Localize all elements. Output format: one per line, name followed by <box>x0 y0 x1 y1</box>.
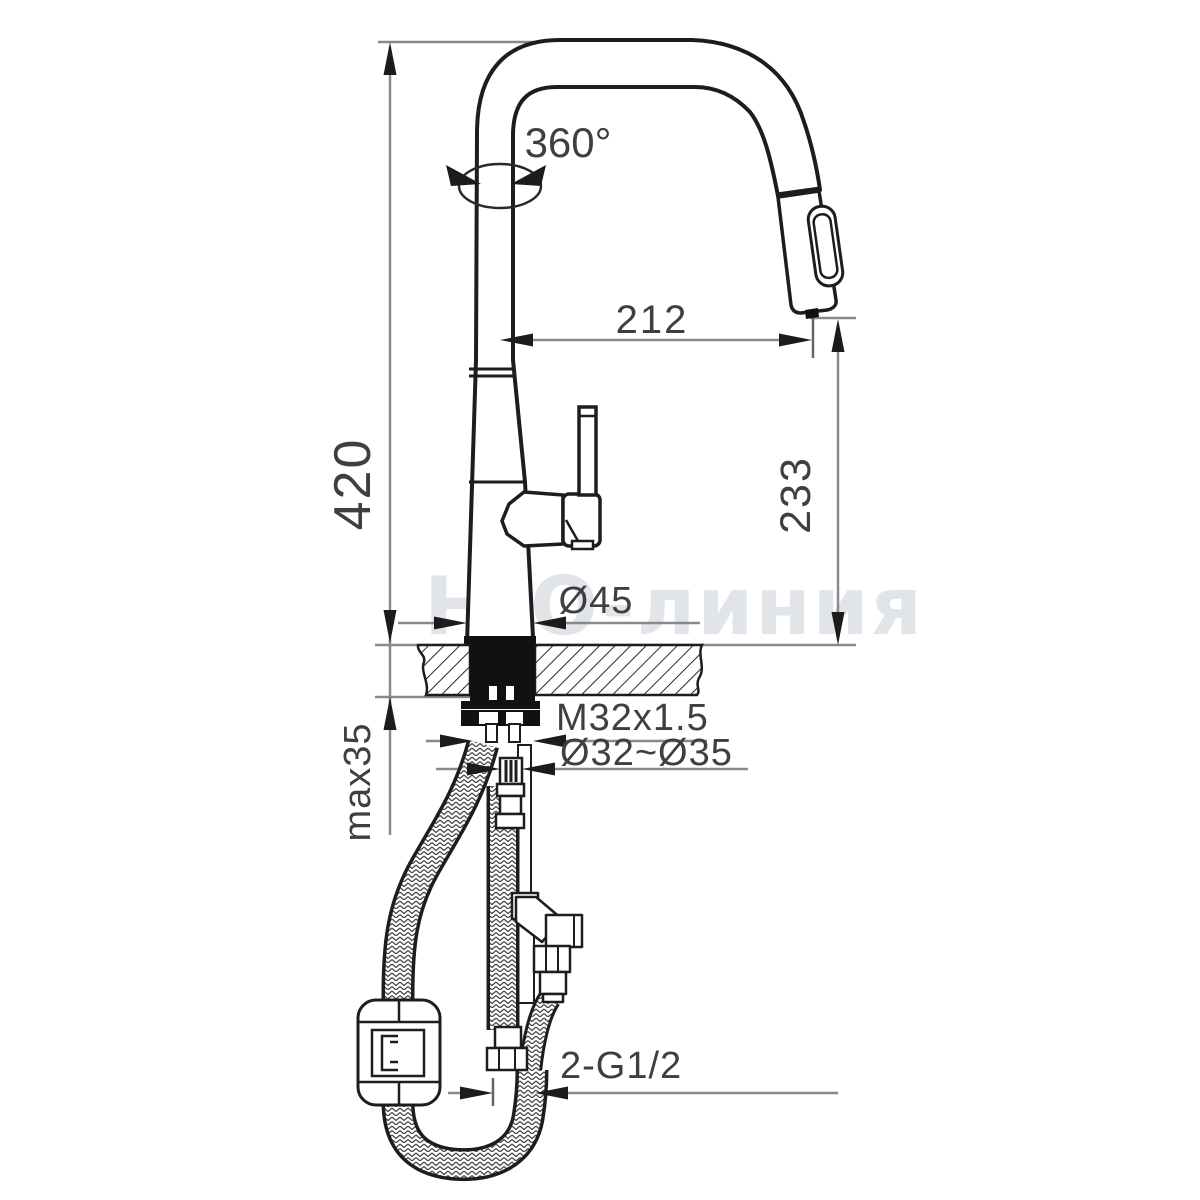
shank-slot-2 <box>506 686 514 700</box>
valve-cylinder <box>546 915 582 947</box>
hose-end-collar <box>495 1027 521 1048</box>
dim-mounting-hole-label: Ø32~Ø35 <box>560 732 733 774</box>
dim-base-diameter-label: Ø45 <box>559 580 634 622</box>
handle-base-tab <box>572 541 593 549</box>
valve-body <box>502 492 563 546</box>
fitting-ring-3 <box>496 814 524 828</box>
under-counter-assembly <box>358 724 582 1165</box>
fitting-ring-1 <box>497 784 524 796</box>
counter-left <box>418 645 470 695</box>
mounting-nut <box>461 710 540 726</box>
arrow-212-right <box>779 334 812 347</box>
faucet-installation-drawing: H₂O-линия <box>0 0 1200 1200</box>
base-flange <box>464 636 536 645</box>
valve-stub-cap <box>543 994 563 1002</box>
stud-bolt-left <box>486 724 497 742</box>
drawing-svg: H₂O-линия <box>0 0 1200 1200</box>
nut-slot-1 <box>479 712 498 724</box>
swivel-arrow-right <box>511 165 546 186</box>
dim-max-thickness-label: max35 <box>337 722 379 841</box>
arrow-420-bottom <box>384 610 397 643</box>
g12-hex-nut <box>487 1048 527 1070</box>
mounting-washer <box>461 701 540 709</box>
valve-stub <box>540 972 566 994</box>
valve-plate <box>517 925 534 1003</box>
handle-base <box>563 494 600 546</box>
valve-hex-nut <box>534 946 570 972</box>
threaded-shank <box>470 645 535 701</box>
hose-counterweight <box>358 1000 440 1105</box>
dim-connections-label: 2-G1/2 <box>560 1045 682 1087</box>
swivel-angle-label: 360° <box>525 119 612 166</box>
nut-slot-2 <box>506 712 523 724</box>
dim-total-height-label: 420 <box>324 438 382 531</box>
arrow-g12-left <box>460 1087 493 1100</box>
arrow-max35-bottom <box>384 697 397 730</box>
counter-right <box>535 645 702 695</box>
dim-outlet-height-label: 233 <box>772 456 820 534</box>
arrow-420-top <box>384 42 397 75</box>
dim-spout-reach-label: 212 <box>616 298 689 342</box>
fitting-ring-2 <box>500 796 521 814</box>
arrow-233-top <box>832 319 845 352</box>
handle-lever <box>579 407 596 495</box>
stud-bolt-right <box>509 724 520 742</box>
shank-slot-1 <box>489 686 497 700</box>
